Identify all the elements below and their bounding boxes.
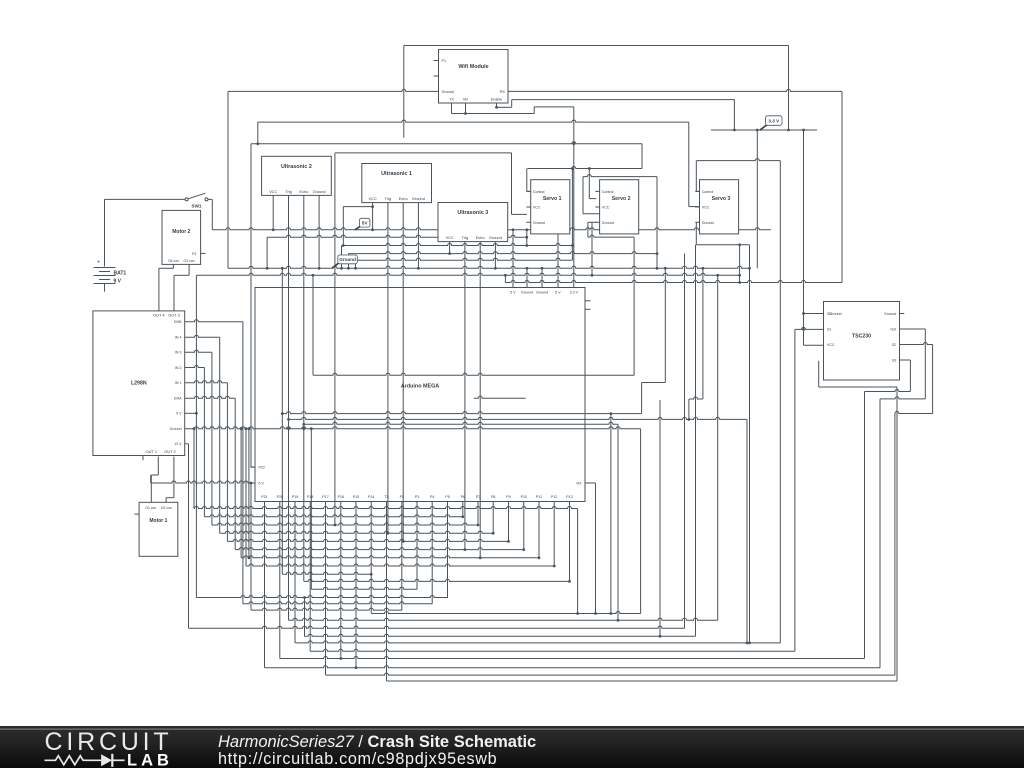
svg-text:P21: P21 [261,495,267,499]
svg-text:Servo 1: Servo 1 [543,196,562,202]
svg-text:Servo 2: Servo 2 [612,196,631,202]
svg-text:P15: P15 [353,495,359,499]
svg-text:OUT 3: OUT 3 [168,313,179,318]
svg-text:5V: 5V [362,221,369,226]
svg-text:TSC230: TSC230 [852,334,871,340]
svg-text:Ground: Ground [830,312,842,316]
svg-text:P9: P9 [506,495,510,499]
svg-text:P17: P17 [322,495,328,499]
svg-text:P20: P20 [277,495,283,499]
svg-text:9 V: 9 V [114,279,122,285]
svg-text:P11: P11 [536,495,542,499]
svg-text:IN 3: IN 3 [175,351,182,355]
svg-text:VCC: VCC [445,235,453,240]
svg-text:IN 2: IN 2 [175,366,182,370]
svg-text:Ground: Ground [442,90,454,94]
svg-text:Control: Control [702,190,714,194]
svg-text:S1: S1 [827,328,831,332]
svg-text:Arduino MEGA: Arduino MEGA [401,384,439,390]
svg-text:Motor 1: Motor 1 [149,518,167,524]
svg-text:P6: P6 [461,495,465,499]
svg-text:Echo: Echo [299,189,308,194]
svg-text:Ground: Ground [702,221,714,225]
svg-text:VCC: VCC [702,206,710,210]
svg-text:Ultrasonic 2: Ultrasonic 2 [281,164,312,170]
svg-text:LAB: LAB [127,751,173,768]
svg-text:5 V: 5 V [555,291,561,295]
svg-text:Ground: Ground [521,291,533,295]
svg-text:P14: P14 [368,495,374,499]
svg-text:http://circuitlab.com/c98pdjx9: http://circuitlab.com/c98pdjx95eswb [218,750,497,768]
svg-text:P4: P4 [430,495,434,499]
svg-text:P18: P18 [307,495,313,499]
svg-text:5 V: 5 V [510,291,516,295]
svg-text:5 V: 5 V [176,412,182,416]
svg-text:OUT 1: OUT 1 [146,449,157,454]
svg-text:P19: P19 [292,495,298,499]
svg-text:VCC: VCC [602,206,610,210]
svg-text:IN 1: IN 1 [175,381,182,385]
svg-text:TX: TX [449,98,454,102]
svg-text:Ground: Ground [339,257,356,262]
svg-text:S2: S2 [892,343,896,347]
svg-text:SW1: SW1 [192,204,202,209]
svg-text:Ground: Ground [536,291,548,295]
svg-text:S3: S3 [892,359,896,363]
svg-text:Out: Out [890,328,896,332]
svg-text:Vin: Vin [463,98,468,102]
svg-text:Ground: Ground [412,196,425,201]
svg-text:12 V: 12 V [174,442,182,446]
svg-text:HarmonicSeries27 / Crash Site: HarmonicSeries27 / Crash Site Schematic [218,733,536,751]
svg-text:Trig: Trig [462,235,469,240]
svg-text:P7: P7 [476,495,480,499]
svg-text:Ground: Ground [313,189,326,194]
svg-text:5 V: 5 V [259,482,265,486]
svg-text:Ground: Ground [533,221,545,225]
svg-text:VCC: VCC [368,196,376,201]
svg-text:ENA: ENA [174,397,182,401]
svg-text:O1 con: O1 con [145,506,156,510]
svg-text:L298N: L298N [131,381,147,387]
svg-text:P13: P13 [566,495,572,499]
svg-text:RX: RX [577,482,583,486]
svg-text:Servo 3: Servo 3 [712,196,731,202]
svg-text:OUT 2: OUT 2 [164,449,175,454]
svg-text:3.3 V: 3.3 V [768,119,780,124]
svg-text:Wifi Module: Wifi Module [458,64,488,70]
svg-text:P3: P3 [415,495,419,499]
svg-text:TX: TX [384,495,389,499]
svg-text:O4 con: O4 con [168,259,179,263]
svg-text:P1: P1 [192,252,196,256]
svg-text:P2: P2 [400,495,404,499]
svg-text:Trig: Trig [285,189,292,194]
svg-text:VCC: VCC [533,206,541,210]
svg-text:VCC: VCC [269,189,277,194]
svg-text:Ground: Ground [170,427,182,431]
svg-text:Motor 2: Motor 2 [172,229,190,235]
svg-text:Echo: Echo [399,196,408,201]
svg-text:IN 4: IN 4 [175,336,182,340]
svg-text:RX: RX [500,90,506,94]
svg-text:Ground: Ground [884,312,896,316]
svg-text:Control: Control [533,190,545,194]
svg-text:Ground: Ground [489,235,502,240]
svg-text:P16: P16 [338,495,344,499]
svg-text:O2 con: O2 con [161,506,172,510]
svg-text:+: + [97,260,100,266]
svg-text:Trig: Trig [385,196,392,201]
svg-text:P12: P12 [551,495,557,499]
svg-text:Ultrasonic 1: Ultrasonic 1 [381,171,412,177]
svg-text:P1: P1 [442,59,447,63]
svg-text:O3 con: O3 con [184,259,195,263]
svg-text:P10: P10 [521,495,527,499]
svg-text:ENB: ENB [174,320,182,324]
svg-text:Control: Control [602,190,614,194]
svg-text:BAT1: BAT1 [114,271,127,277]
svg-text:P22: P22 [259,466,265,470]
svg-text:VCC: VCC [827,343,835,347]
svg-text:Ground: Ground [602,221,614,225]
svg-text:P5: P5 [445,495,449,499]
svg-text:Ultrasonic 3: Ultrasonic 3 [457,210,488,216]
svg-text:OUT 4: OUT 4 [153,313,165,318]
svg-text:P8: P8 [491,495,495,499]
svg-text:3.3 V: 3.3 V [570,291,579,295]
svg-text:Enable: Enable [491,98,502,102]
svg-text:Echo: Echo [476,235,485,240]
